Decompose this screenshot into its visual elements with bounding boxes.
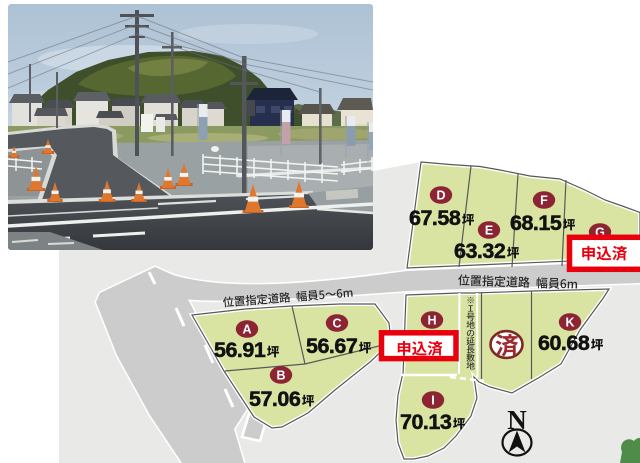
svg-text:C: C — [332, 316, 341, 330]
svg-text:F: F — [540, 193, 548, 207]
svg-text:B: B — [276, 368, 285, 382]
svg-text:60.68: 60.68 — [538, 331, 590, 355]
svg-text:63.32: 63.32 — [454, 239, 506, 263]
svg-text:56.91: 56.91 — [214, 338, 266, 362]
svg-text:70.13: 70.13 — [400, 410, 452, 434]
svg-text:56.67: 56.67 — [306, 334, 358, 358]
svg-text:E: E — [485, 223, 493, 237]
svg-text:67.58: 67.58 — [409, 206, 461, 230]
svg-text:H: H — [427, 313, 436, 327]
svg-text:K: K — [565, 315, 574, 329]
svg-text:I: I — [431, 393, 434, 407]
svg-text:57.06: 57.06 — [249, 387, 301, 411]
svg-text:A: A — [242, 322, 251, 336]
svg-text:D: D — [436, 188, 445, 202]
svg-text:68.15: 68.15 — [510, 211, 562, 235]
